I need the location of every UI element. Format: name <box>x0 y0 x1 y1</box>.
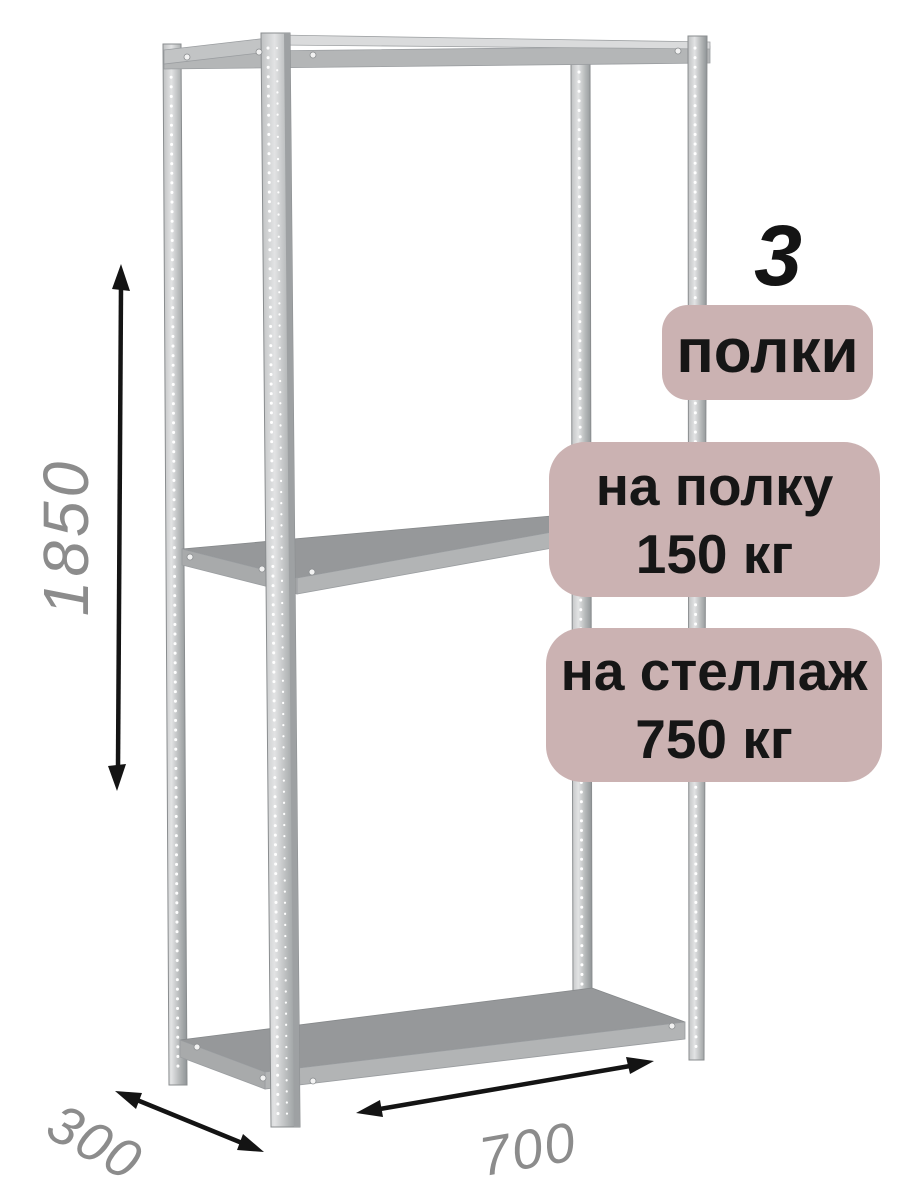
shelf-count-badge: полки <box>662 305 873 400</box>
height-arrow-icon <box>108 264 130 791</box>
rack-bottom-shelf <box>180 988 685 1089</box>
per-rack-load-label: на стеллаж <box>546 637 882 705</box>
shelving-rack-drawing <box>0 0 900 1200</box>
rack-middle-shelf <box>182 513 597 594</box>
per-rack-load-badge: на стеллаж 750 кг <box>546 628 882 782</box>
per-shelf-load-value: 150 кг <box>549 520 880 588</box>
height-dimension-label: 1850 <box>32 417 100 657</box>
product-illustration: 1850 300 700 3 полки на полку 150 кг на … <box>0 0 900 1200</box>
per-rack-load-value: 750 кг <box>546 705 882 773</box>
per-shelf-load-label: на полку <box>549 452 880 520</box>
shelf-count-number: 3 <box>731 206 825 306</box>
shelf-count-unit-label: полки <box>676 317 858 386</box>
rack-top-shelf <box>164 35 710 69</box>
per-shelf-load-badge: на полку 150 кг <box>549 442 880 597</box>
